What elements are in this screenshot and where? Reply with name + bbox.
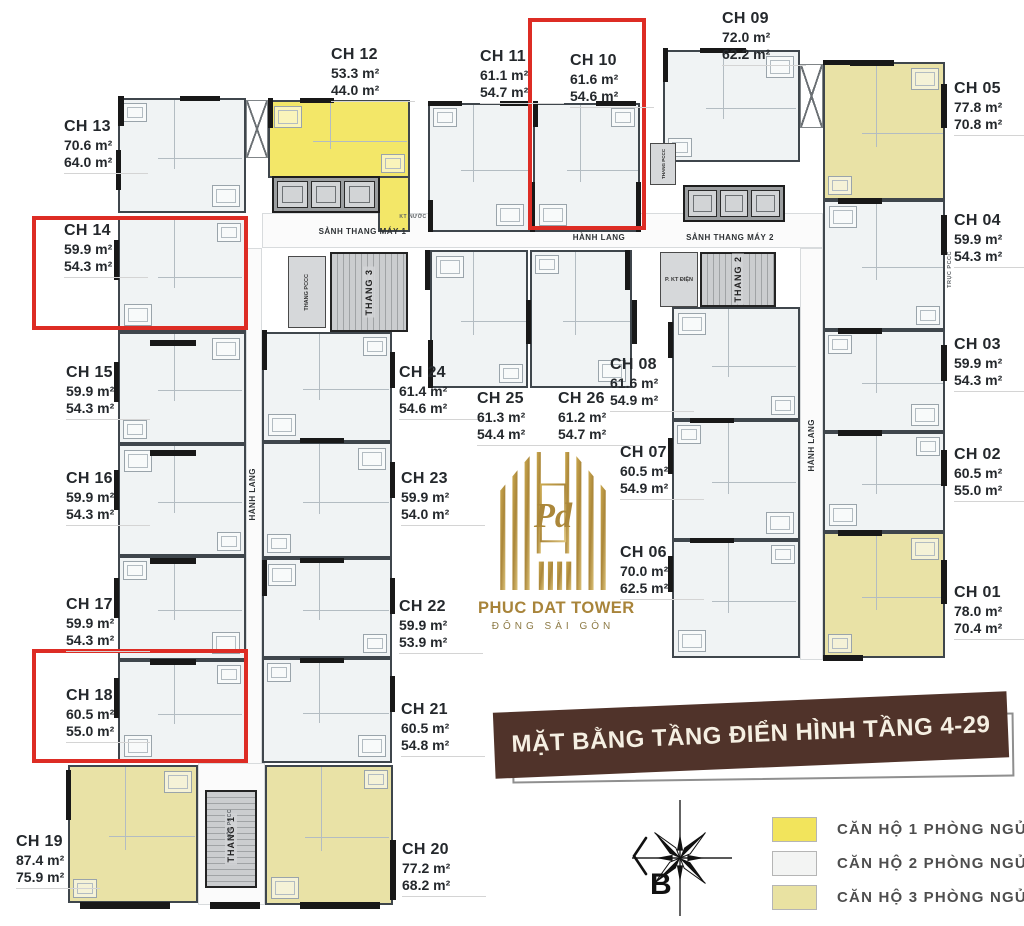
unit-area-gross: 59.9 m² bbox=[954, 355, 1024, 371]
wall-segment bbox=[838, 530, 882, 536]
unit-area-gross: 77.2 m² bbox=[402, 860, 486, 876]
unit-label-ch-02: CH 0260.5 m²55.0 m² bbox=[954, 446, 1024, 502]
unit-id: CH 14 bbox=[64, 222, 148, 240]
elevator-bank-1 bbox=[272, 176, 380, 213]
unit-label-ch-05: CH 0577.8 m²70.8 m² bbox=[954, 80, 1024, 136]
unit-area-gross: 70.0 m² bbox=[620, 563, 704, 579]
wall-segment bbox=[625, 250, 630, 290]
unit-area-gross: 59.9 m² bbox=[66, 383, 150, 399]
unit-id: CH 19 bbox=[16, 833, 100, 851]
unit-id: CH 02 bbox=[954, 446, 1024, 464]
unit-label-ch-14: CH 1459.9 m²54.3 m² bbox=[64, 222, 148, 278]
unit-id: CH 15 bbox=[66, 364, 150, 382]
unit-ch-09 bbox=[663, 50, 800, 162]
unit-label-ch-18: CH 1860.5 m²55.0 m² bbox=[66, 687, 150, 743]
unit-area-net: 62.2 m² bbox=[722, 46, 806, 62]
elevator-car bbox=[344, 181, 375, 208]
unit-area-net: 54.4 m² bbox=[477, 426, 561, 442]
compass-rose: B bbox=[628, 792, 738, 918]
legend-item-2pn: CĂN HỘ 2 PHÒNG NGỦ bbox=[772, 850, 1024, 876]
unit-id: CH 26 bbox=[558, 390, 642, 408]
unit-id: CH 03 bbox=[954, 336, 1024, 354]
zone-label-hanh-lang-right: HÀNH LANG bbox=[801, 398, 822, 492]
wall-segment bbox=[425, 250, 430, 290]
structural-brace bbox=[800, 64, 823, 128]
wall-segment bbox=[838, 430, 882, 436]
unit-label-ch-03: CH 0359.9 m²54.3 m² bbox=[954, 336, 1024, 392]
unit-area-net: 54.7 m² bbox=[480, 84, 564, 100]
unit-area-gross: 61.4 m² bbox=[399, 383, 483, 399]
wall-segment bbox=[80, 902, 170, 909]
unit-label-ch-06: CH 0670.0 m²62.5 m² bbox=[620, 544, 704, 600]
wall-segment bbox=[390, 840, 396, 900]
elevator-bank-2 bbox=[683, 185, 785, 222]
unit-label-ch-26: CH 2661.2 m²54.7 m² bbox=[558, 390, 642, 446]
unit-area-net: 70.4 m² bbox=[954, 620, 1024, 636]
unit-id: CH 08 bbox=[610, 356, 694, 374]
unit-area-net: 54.7 m² bbox=[558, 426, 642, 442]
unit-area-net: 54.6 m² bbox=[570, 88, 654, 104]
wall-segment bbox=[390, 676, 395, 712]
unit-area-gross: 53.3 m² bbox=[331, 65, 415, 81]
unit-area-net: 55.0 m² bbox=[954, 482, 1024, 498]
wall-segment bbox=[262, 560, 267, 596]
unit-id: CH 01 bbox=[954, 584, 1024, 602]
unit-label-ch-16: CH 1659.9 m²54.3 m² bbox=[66, 470, 150, 526]
unit-area-net: 44.0 m² bbox=[331, 82, 415, 98]
unit-ch-22 bbox=[262, 558, 392, 658]
unit-id: CH 25 bbox=[477, 390, 561, 408]
legend-swatch-3pn bbox=[772, 885, 817, 910]
elevator-car bbox=[277, 181, 308, 208]
unit-label-ch-13: CH 1370.6 m²64.0 m² bbox=[64, 118, 148, 174]
compass-north-label: B bbox=[650, 868, 672, 901]
unit-id: CH 10 bbox=[570, 52, 654, 70]
unit-id: CH 04 bbox=[954, 212, 1024, 230]
unit-label-ch-12: CH 1253.3 m²44.0 m² bbox=[331, 46, 415, 102]
unit-area-net: 54.9 m² bbox=[620, 480, 704, 496]
wall-segment bbox=[300, 902, 380, 909]
wall-segment bbox=[268, 98, 273, 128]
page-title: MẶT BẰNG TẦNG ĐIỂN HÌNH TẦNG 4-29 bbox=[511, 711, 991, 759]
unit-area-gross: 59.9 m² bbox=[64, 241, 148, 257]
unit-id: CH 06 bbox=[620, 544, 704, 562]
zone-label-sanh-thang-may-1: SẢNH THANG MÁY 1 bbox=[300, 224, 425, 238]
unit-area-net: 54.0 m² bbox=[401, 506, 485, 522]
unit-id: CH 20 bbox=[402, 841, 486, 859]
unit-area-gross: 59.9 m² bbox=[954, 231, 1024, 247]
unit-label-ch-10: CH 1061.6 m²54.6 m² bbox=[570, 52, 654, 108]
unit-id: CH 23 bbox=[401, 470, 485, 488]
unit-ch-12 bbox=[268, 100, 410, 178]
unit-ch-21 bbox=[262, 658, 392, 763]
wall-segment bbox=[838, 198, 882, 204]
unit-area-gross: 59.9 m² bbox=[66, 615, 150, 631]
unit-ch-20 bbox=[265, 765, 393, 905]
unit-area-net: 70.8 m² bbox=[954, 116, 1024, 132]
wall-segment bbox=[66, 770, 71, 820]
zone-label-hanh-lang-left: HÀNH LANG bbox=[241, 448, 263, 540]
unit-ch-02 bbox=[823, 432, 945, 532]
unit-area-net: 54.3 m² bbox=[64, 258, 148, 274]
elevator-car bbox=[311, 181, 342, 208]
logo-subtitle: ĐÔNG SÀI GÒN bbox=[478, 621, 628, 632]
unit-label-ch-21: CH 2160.5 m²54.8 m² bbox=[401, 701, 485, 757]
unit-area-net: 54.3 m² bbox=[954, 372, 1024, 388]
unit-id: CH 09 bbox=[722, 10, 806, 28]
unit-ch-11 bbox=[428, 103, 530, 232]
logo-monogram: Pd bbox=[533, 497, 573, 535]
zone-label-kt-nuoc: KT NƯỚC bbox=[396, 212, 430, 222]
unit-area-gross: 60.5 m² bbox=[620, 463, 704, 479]
wall-segment bbox=[262, 330, 267, 370]
wall-segment bbox=[390, 462, 395, 498]
wall-segment bbox=[300, 438, 344, 443]
wall-segment bbox=[180, 96, 220, 101]
wall-segment bbox=[210, 902, 260, 909]
elevator-car bbox=[720, 190, 749, 217]
wall-segment bbox=[390, 578, 395, 614]
unit-id: CH 22 bbox=[399, 598, 483, 616]
wall-segment bbox=[941, 345, 947, 381]
unit-area-gross: 61.6 m² bbox=[570, 71, 654, 87]
unit-id: CH 05 bbox=[954, 80, 1024, 98]
wall-segment bbox=[300, 658, 344, 663]
service-room-p-kt-dien: P. KT ĐIỆN bbox=[660, 252, 698, 307]
unit-label-ch-22: CH 2259.9 m²53.9 m² bbox=[399, 598, 483, 654]
wall-segment bbox=[663, 48, 668, 82]
unit-area-gross: 70.6 m² bbox=[64, 137, 148, 153]
unit-ch-03 bbox=[823, 330, 945, 432]
unit-label-ch-17: CH 1759.9 m²54.3 m² bbox=[66, 596, 150, 652]
wall-segment bbox=[941, 560, 947, 604]
wall-segment bbox=[941, 450, 947, 486]
wall-segment bbox=[300, 558, 344, 563]
wall-segment bbox=[300, 98, 334, 103]
unit-area-gross: 87.4 m² bbox=[16, 852, 100, 868]
unit-id: CH 12 bbox=[331, 46, 415, 64]
wall-segment bbox=[941, 84, 947, 128]
unit-id: CH 17 bbox=[66, 596, 150, 614]
unit-area-net: 54.3 m² bbox=[66, 632, 150, 648]
legend-swatch-2pn bbox=[772, 851, 817, 876]
wall-segment bbox=[850, 60, 894, 66]
unit-area-net: 68.2 m² bbox=[402, 877, 486, 893]
unit-id: CH 24 bbox=[399, 364, 483, 382]
unit-area-gross: 60.5 m² bbox=[401, 720, 485, 736]
zone-label-sanh-thang-may-2: SẢNH THANG MÁY 2 bbox=[668, 230, 792, 244]
unit-area-gross: 59.9 m² bbox=[399, 617, 483, 633]
unit-ch-24 bbox=[262, 332, 392, 442]
legend-item-3pn: CĂN HỘ 3 PHÒNG NGỦ bbox=[772, 884, 1024, 910]
unit-area-gross: 61.3 m² bbox=[477, 409, 561, 425]
unit-area-gross: 61.6 m² bbox=[610, 375, 694, 391]
stair-core-thang-2: THANG 2 bbox=[700, 252, 776, 307]
wall-segment bbox=[526, 300, 531, 344]
zone-label-hanh-lang-top: HÀNH LANG bbox=[562, 230, 636, 244]
wall-segment bbox=[690, 418, 734, 423]
unit-ch-05 bbox=[823, 62, 945, 200]
unit-label-ch-24: CH 2461.4 m²54.6 m² bbox=[399, 364, 483, 420]
unit-label-ch-01: CH 0178.0 m²70.4 m² bbox=[954, 584, 1024, 640]
unit-area-gross: 60.5 m² bbox=[954, 465, 1024, 481]
stair-core-thang-3: THANG 3 bbox=[330, 252, 408, 332]
unit-label-ch-23: CH 2359.9 m²54.0 m² bbox=[401, 470, 485, 526]
wall-segment bbox=[150, 558, 196, 564]
unit-area-gross: 60.5 m² bbox=[66, 706, 150, 722]
unit-id: CH 16 bbox=[66, 470, 150, 488]
wall-segment bbox=[150, 340, 196, 346]
legend-label-3pn: CĂN HỘ 3 PHÒNG NGỦ bbox=[837, 889, 1024, 906]
unit-label-ch-07: CH 0760.5 m²54.9 m² bbox=[620, 444, 704, 500]
unit-area-net: 54.3 m² bbox=[66, 400, 150, 416]
unit-area-net: 54.6 m² bbox=[399, 400, 483, 416]
unit-id: CH 21 bbox=[401, 701, 485, 719]
unit-label-ch-09: CH 0972.0 m²62.2 m² bbox=[722, 10, 806, 66]
wall-segment bbox=[390, 352, 395, 388]
wall-segment bbox=[632, 300, 637, 344]
unit-ch-23 bbox=[262, 442, 392, 558]
logo-title: PHUC DAT TOWER bbox=[478, 599, 628, 618]
structural-brace bbox=[246, 100, 268, 158]
legend-label-2pn: CĂN HỘ 2 PHÒNG NGỦ bbox=[837, 855, 1024, 872]
unit-label-ch-20: CH 2077.2 m²68.2 m² bbox=[402, 841, 486, 897]
unit-area-net: 55.0 m² bbox=[66, 723, 150, 739]
legend-label-1pn: CĂN HỘ 1 PHÒNG NGỦ bbox=[837, 821, 1024, 838]
zone-label-hop-pccc: HỘP PCCC bbox=[225, 798, 235, 850]
unit-area-net: 54.3 m² bbox=[66, 506, 150, 522]
unit-label-ch-19: CH 1987.4 m²75.9 m² bbox=[16, 833, 100, 889]
project-logo: Pd PHUC DAT TOWER ĐÔNG SÀI GÒN bbox=[478, 450, 628, 632]
unit-label-ch-04: CH 0459.9 m²54.3 m² bbox=[954, 212, 1024, 268]
unit-area-gross: 61.1 m² bbox=[480, 67, 564, 83]
unit-area-net: 62.5 m² bbox=[620, 580, 704, 596]
unit-ch-01 bbox=[823, 532, 945, 658]
wall-segment bbox=[668, 322, 673, 358]
wall-segment bbox=[838, 328, 882, 334]
unit-area-gross: 78.0 m² bbox=[954, 603, 1024, 619]
unit-id: CH 07 bbox=[620, 444, 704, 462]
north-arrow-bracket bbox=[634, 838, 646, 874]
logo-tower-icon: Pd bbox=[492, 450, 614, 592]
floor-plan-page: THANG 1THANG 2THANG 3THANG PCCCP. KT ĐIỆ… bbox=[0, 0, 1024, 926]
unit-area-net: 54.3 m² bbox=[954, 248, 1024, 264]
unit-label-ch-25: CH 2561.3 m²54.4 m² bbox=[477, 390, 561, 446]
wall-segment bbox=[690, 538, 734, 543]
unit-area-net: 64.0 m² bbox=[64, 154, 148, 170]
unit-area-net: 54.8 m² bbox=[401, 737, 485, 753]
unit-ch-04 bbox=[823, 200, 945, 330]
wall-segment bbox=[428, 101, 462, 106]
unit-id: CH 18 bbox=[66, 687, 150, 705]
service-room-thang-pccc-1: THANG PCCC bbox=[288, 256, 326, 328]
unit-area-gross: 59.9 m² bbox=[66, 489, 150, 505]
unit-area-gross: 77.8 m² bbox=[954, 99, 1024, 115]
wall-segment bbox=[150, 450, 196, 456]
unit-area-net: 53.9 m² bbox=[399, 634, 483, 650]
unit-area-gross: 61.2 m² bbox=[558, 409, 642, 425]
unit-area-gross: 59.9 m² bbox=[401, 489, 485, 505]
unit-area-gross: 72.0 m² bbox=[722, 29, 806, 45]
unit-area-net: 75.9 m² bbox=[16, 869, 100, 885]
legend-swatch-1pn bbox=[772, 817, 817, 842]
legend-item-1pn: CĂN HỘ 1 PHÒNG NGỦ bbox=[772, 816, 1024, 842]
elevator-car bbox=[688, 190, 717, 217]
wall-segment bbox=[823, 655, 863, 661]
service-room-thang-pccc-2: THANG PCCC bbox=[650, 143, 676, 185]
elevator-car bbox=[751, 190, 780, 217]
unit-label-ch-15: CH 1559.9 m²54.3 m² bbox=[66, 364, 150, 420]
unit-id: CH 13 bbox=[64, 118, 148, 136]
unit-id: CH 11 bbox=[480, 48, 564, 66]
unit-label-ch-11: CH 1161.1 m²54.7 m² bbox=[480, 48, 564, 104]
